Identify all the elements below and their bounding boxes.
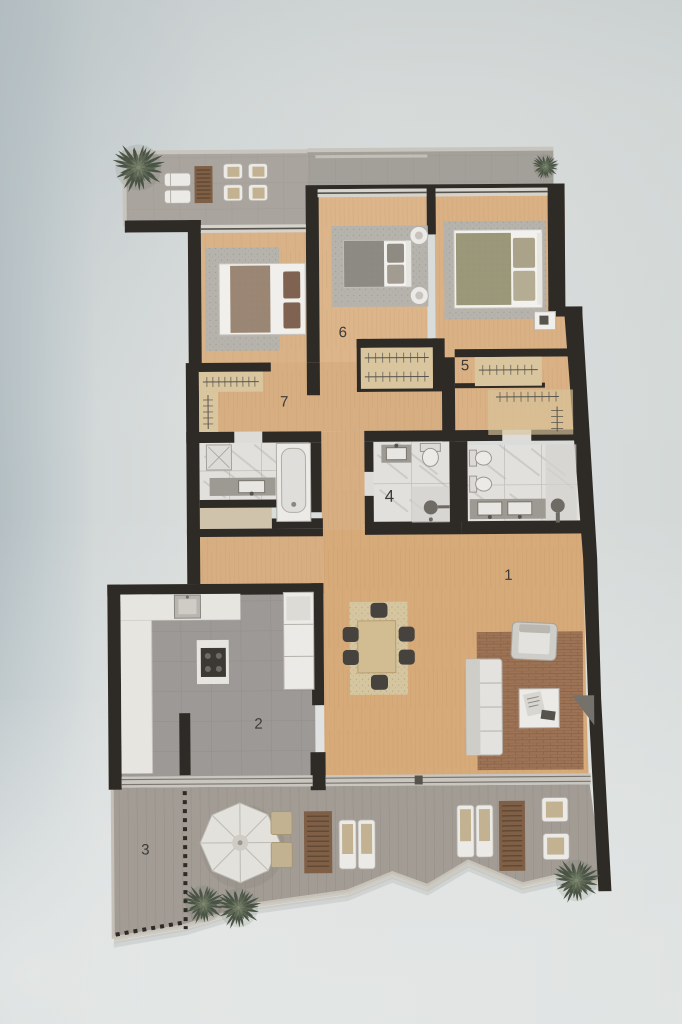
svg-text:7: 7 [280,393,288,410]
svg-text:5: 5 [461,357,469,374]
svg-text:6: 6 [338,324,346,341]
svg-text:1: 1 [504,567,512,584]
svg-text:3: 3 [141,841,149,858]
svg-text:2: 2 [254,716,262,733]
svg-text:4: 4 [385,487,395,506]
